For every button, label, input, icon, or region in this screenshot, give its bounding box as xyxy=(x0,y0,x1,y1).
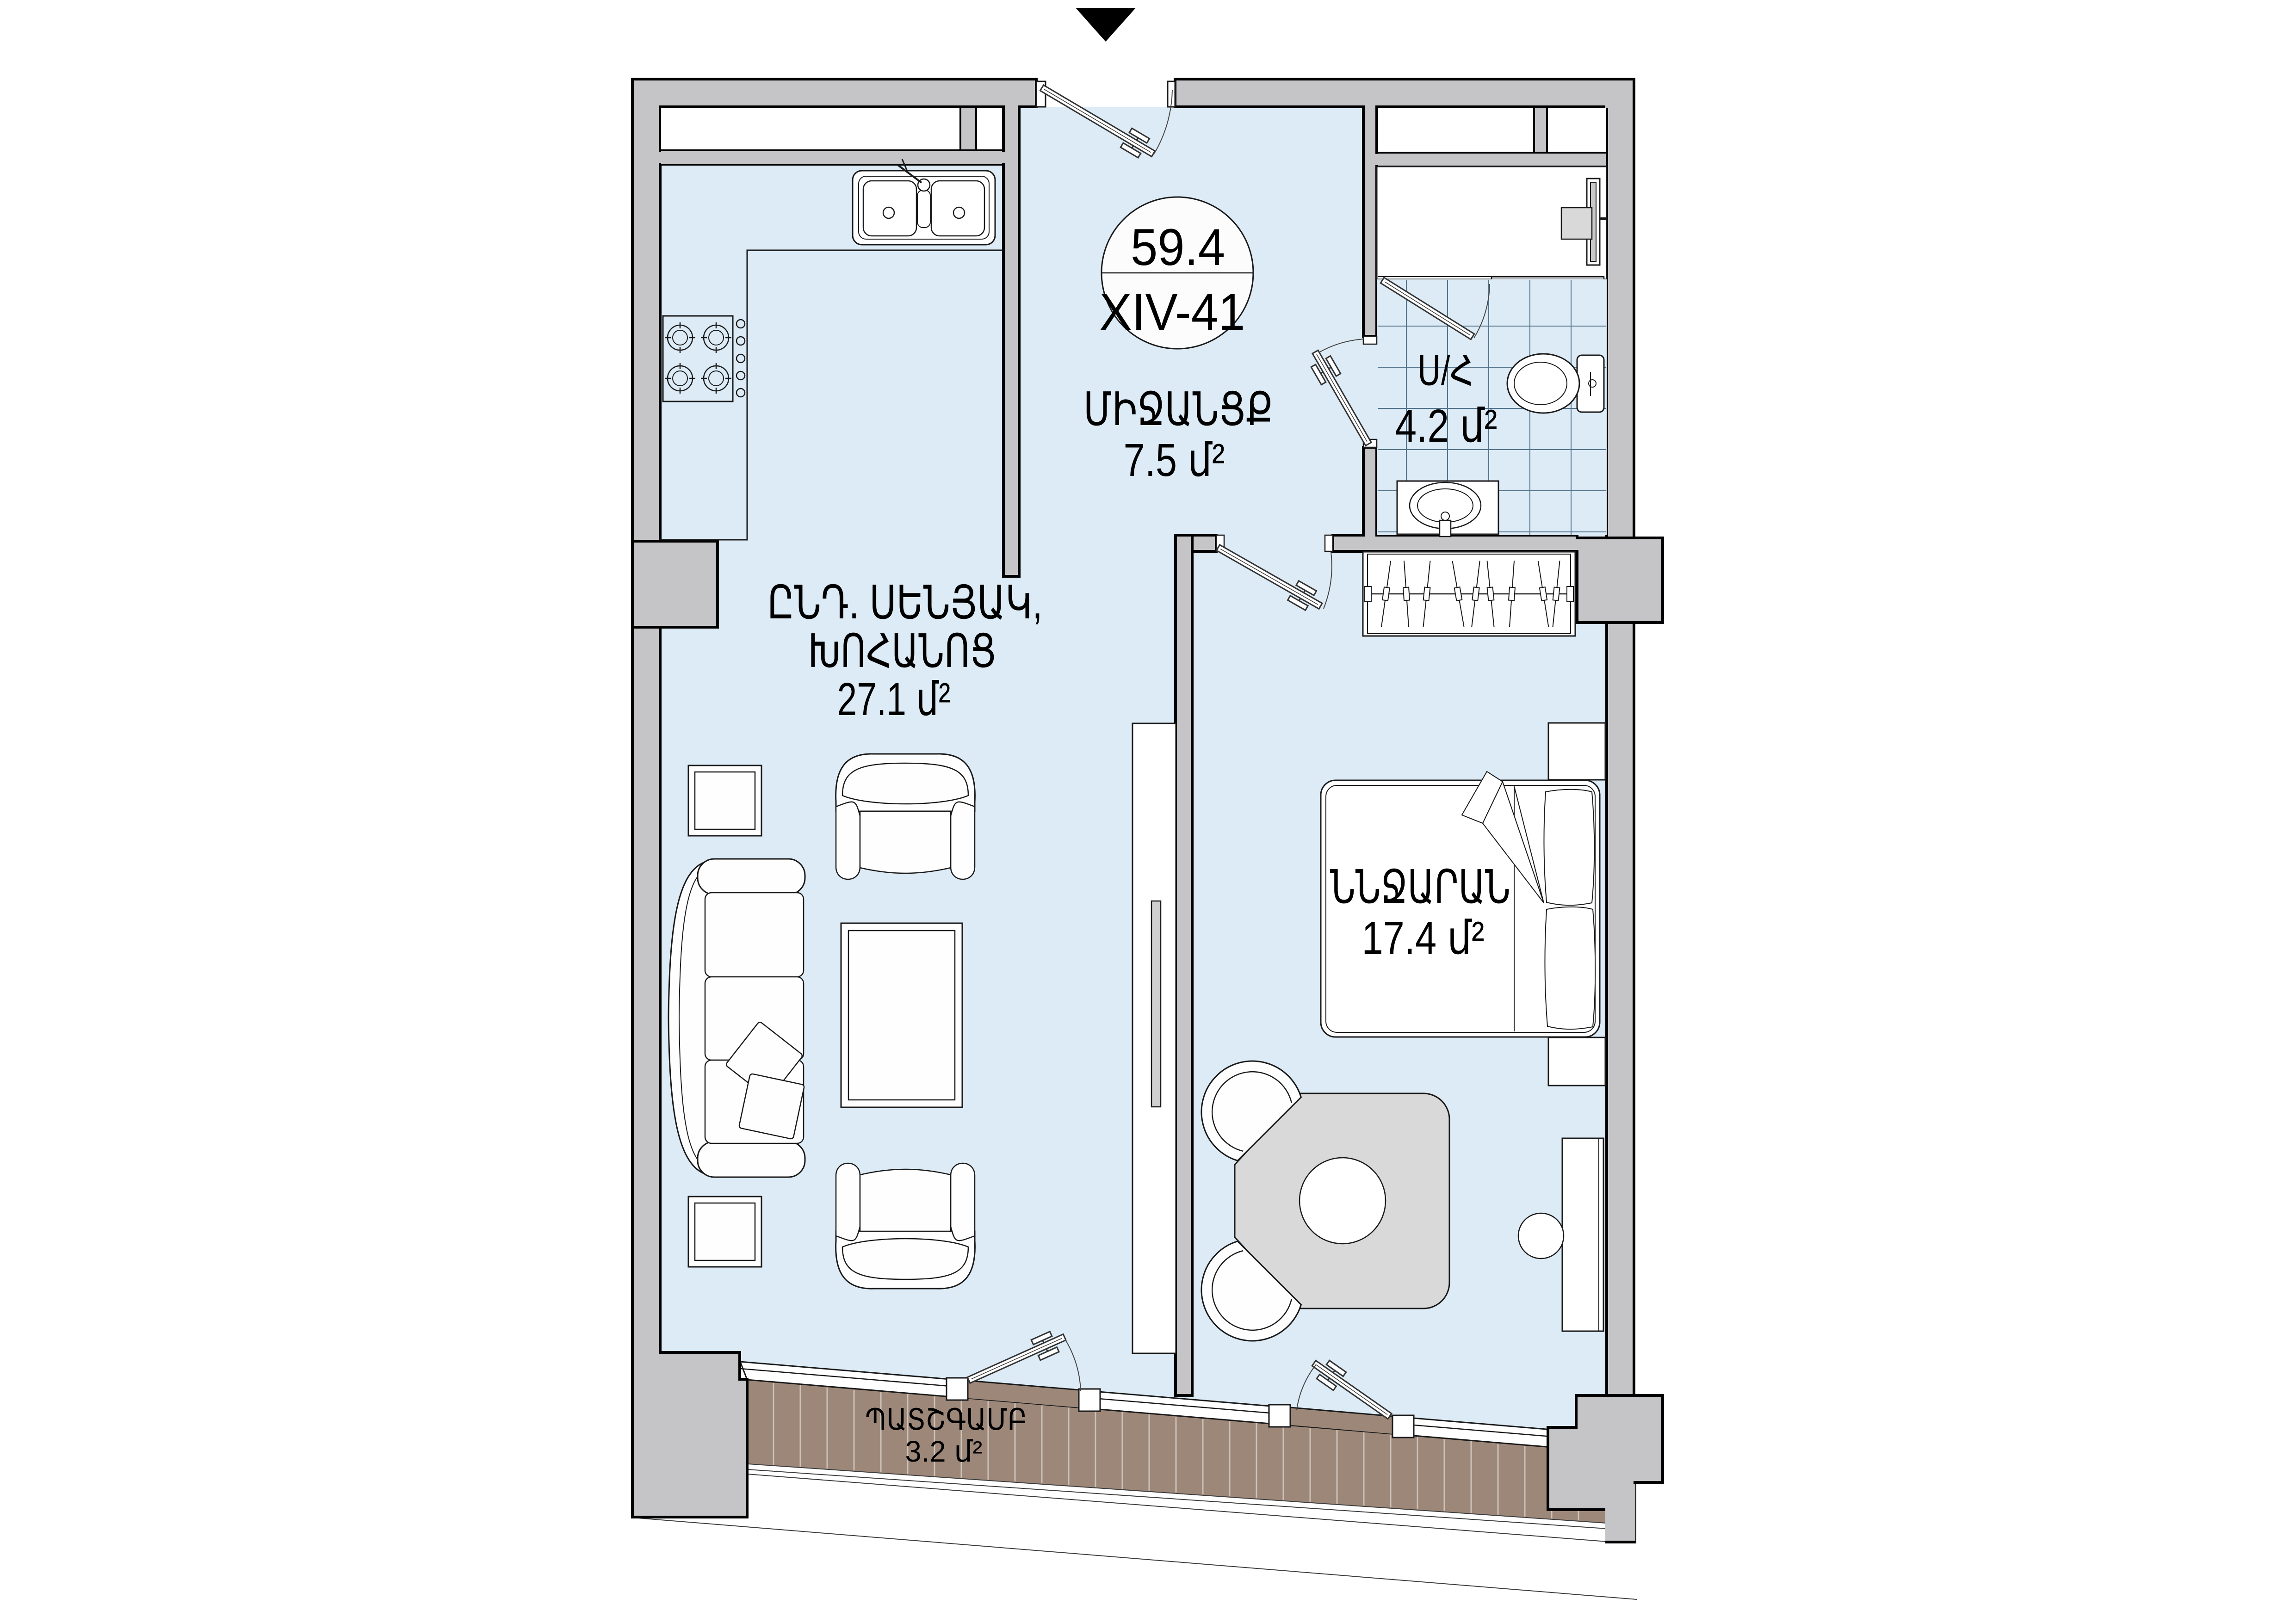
svg-text:3.2 մ²: 3.2 մ² xyxy=(905,1435,983,1468)
svg-text:4.2 մ²: 4.2 մ² xyxy=(1395,400,1498,452)
svg-text:ՊԱՏՇԳԱՄԲ: ՊԱՏՇԳԱՄԲ xyxy=(865,1403,1027,1436)
svg-text:7.5 մ²: 7.5 մ² xyxy=(1124,434,1225,486)
svg-text:XIV-41: XIV-41 xyxy=(1100,283,1245,341)
svg-text:27.1 մ²: 27.1 մ² xyxy=(837,673,951,725)
svg-text:ԸՆԴ. ՍԵՆՅԱԿ,: ԸՆԴ. ՍԵՆՅԱԿ, xyxy=(767,577,1043,629)
svg-text:ՆՆՋԱՐԱՆ: ՆՆՋԱՐԱՆ xyxy=(1330,861,1510,913)
svg-text:Ս/Հ: Ս/Հ xyxy=(1417,348,1473,394)
svg-text:ՄԻՋԱՆՑՔ: ՄԻՋԱՆՑՔ xyxy=(1083,383,1273,435)
svg-text:59.4: 59.4 xyxy=(1131,218,1225,276)
svg-text:17.4 մ²: 17.4 մ² xyxy=(1362,912,1485,964)
svg-text:ԽՈՀԱՆՈՑ: ԽՈՀԱՆՈՑ xyxy=(808,625,996,677)
